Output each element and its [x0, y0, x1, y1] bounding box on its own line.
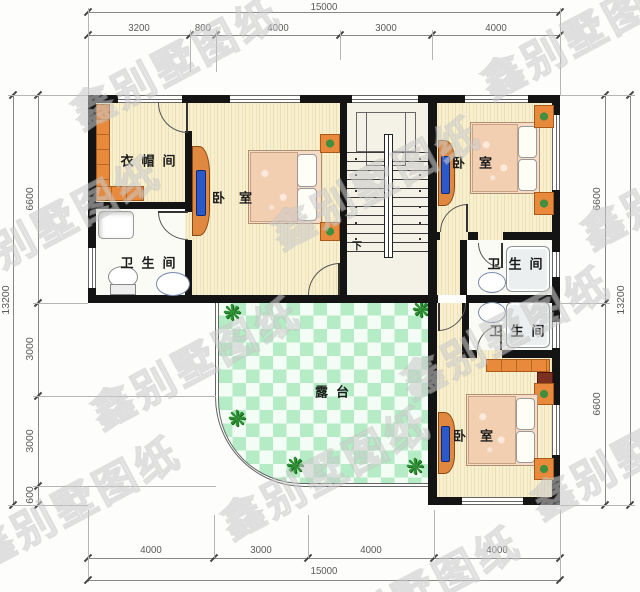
- wall: [88, 295, 438, 303]
- dim-label: 3000: [250, 544, 271, 556]
- window: [462, 497, 523, 505]
- sink: [156, 272, 190, 296]
- door-leaf: [466, 204, 468, 232]
- wall: [428, 303, 437, 505]
- stairs-rail-posts: [419, 158, 421, 254]
- room-label-bedroom-3: 卧室: [439, 426, 507, 445]
- dim-label: 600: [24, 486, 36, 504]
- wall: [428, 103, 437, 303]
- wall: [182, 95, 230, 103]
- wall: [340, 103, 347, 295]
- pillow: [297, 188, 317, 221]
- wall: [462, 350, 477, 358]
- dresser: [486, 359, 550, 372]
- dim-label: 6600: [591, 392, 603, 415]
- wall: [437, 232, 440, 240]
- pillow: [516, 398, 535, 430]
- window: [118, 95, 182, 103]
- dim-label: 4000: [360, 544, 381, 556]
- dim-label: 4000: [267, 22, 288, 34]
- sink: [478, 272, 506, 293]
- stairs-center-rail: [384, 134, 393, 258]
- dim-line-bottom-chain: [88, 558, 560, 559]
- stairs-down-label: 下: [352, 238, 362, 253]
- pillow: [518, 159, 537, 191]
- door-leaf: [158, 211, 188, 213]
- wall: [418, 95, 465, 103]
- window: [552, 405, 560, 455]
- dim-label: 800: [195, 22, 211, 34]
- room-label-bathroom-1: 卫生间: [479, 254, 550, 273]
- wall: [502, 350, 552, 358]
- wall: [88, 95, 96, 248]
- dim-label: 4000: [485, 22, 506, 34]
- room-label-bedroom-1: 卧室: [198, 188, 266, 207]
- window: [230, 95, 300, 103]
- door-leaf: [338, 263, 340, 295]
- dim-label: 15000: [311, 1, 338, 13]
- dim-label: 3000: [24, 337, 36, 360]
- bathtub: [98, 211, 134, 239]
- wall: [460, 240, 467, 295]
- pillow: [516, 431, 535, 463]
- door-leaf: [186, 103, 188, 133]
- room-label-terrace: 露台: [307, 382, 357, 401]
- wall: [468, 232, 478, 240]
- room-label-bathroom-2: 卫生间: [481, 321, 552, 340]
- pillow: [518, 126, 537, 158]
- dim-label: 4000: [140, 544, 161, 556]
- nightstand: [534, 105, 554, 128]
- room-label-bedroom-2: 卧室: [438, 153, 506, 172]
- dim-label: 6600: [591, 187, 603, 210]
- door-leaf: [438, 303, 440, 331]
- wall: [552, 277, 560, 322]
- dim-label: 3200: [128, 22, 149, 34]
- dim-label: 13200: [615, 285, 627, 314]
- window: [552, 252, 560, 277]
- nightstand: [320, 134, 340, 153]
- toilet-tank: [110, 284, 136, 295]
- dim-label: 3000: [375, 22, 396, 34]
- dim-line-top-chain: [88, 35, 560, 36]
- wall: [503, 232, 552, 240]
- wall: [96, 202, 185, 209]
- wardrobe: [96, 104, 110, 198]
- wall: [185, 131, 192, 212]
- pillow: [297, 154, 317, 187]
- room-label-bathroom-left: 卫生间: [112, 253, 183, 272]
- wall: [428, 497, 462, 505]
- window: [88, 248, 96, 288]
- dim-line-right-total: [630, 95, 631, 505]
- plant-icon: ❋: [406, 456, 424, 478]
- wall: [300, 95, 352, 103]
- plant-icon: ❋: [223, 302, 241, 324]
- dim-label: 13200: [0, 285, 12, 314]
- window: [352, 95, 418, 103]
- nightstand: [534, 458, 554, 480]
- dim-label: 3000: [24, 429, 36, 452]
- wardrobe: [96, 186, 144, 201]
- floor-plan: ❋ ❋ ❋ ❋ ❋: [0, 0, 640, 592]
- plant-icon: ❋: [228, 408, 246, 430]
- window: [552, 322, 560, 348]
- dim-line-bottom-total: [88, 580, 560, 581]
- wall: [523, 497, 560, 505]
- dim-line-left-total: [13, 95, 14, 505]
- plant-icon: ❋: [286, 455, 304, 477]
- window: [465, 95, 528, 103]
- dim-label: 4000: [486, 544, 507, 556]
- nightstand: [320, 222, 340, 241]
- room-label-cloakroom: 衣帽间: [112, 151, 183, 170]
- dim-label: 6600: [24, 187, 36, 210]
- nightstand: [534, 192, 554, 215]
- dim-label: 15000: [311, 565, 338, 577]
